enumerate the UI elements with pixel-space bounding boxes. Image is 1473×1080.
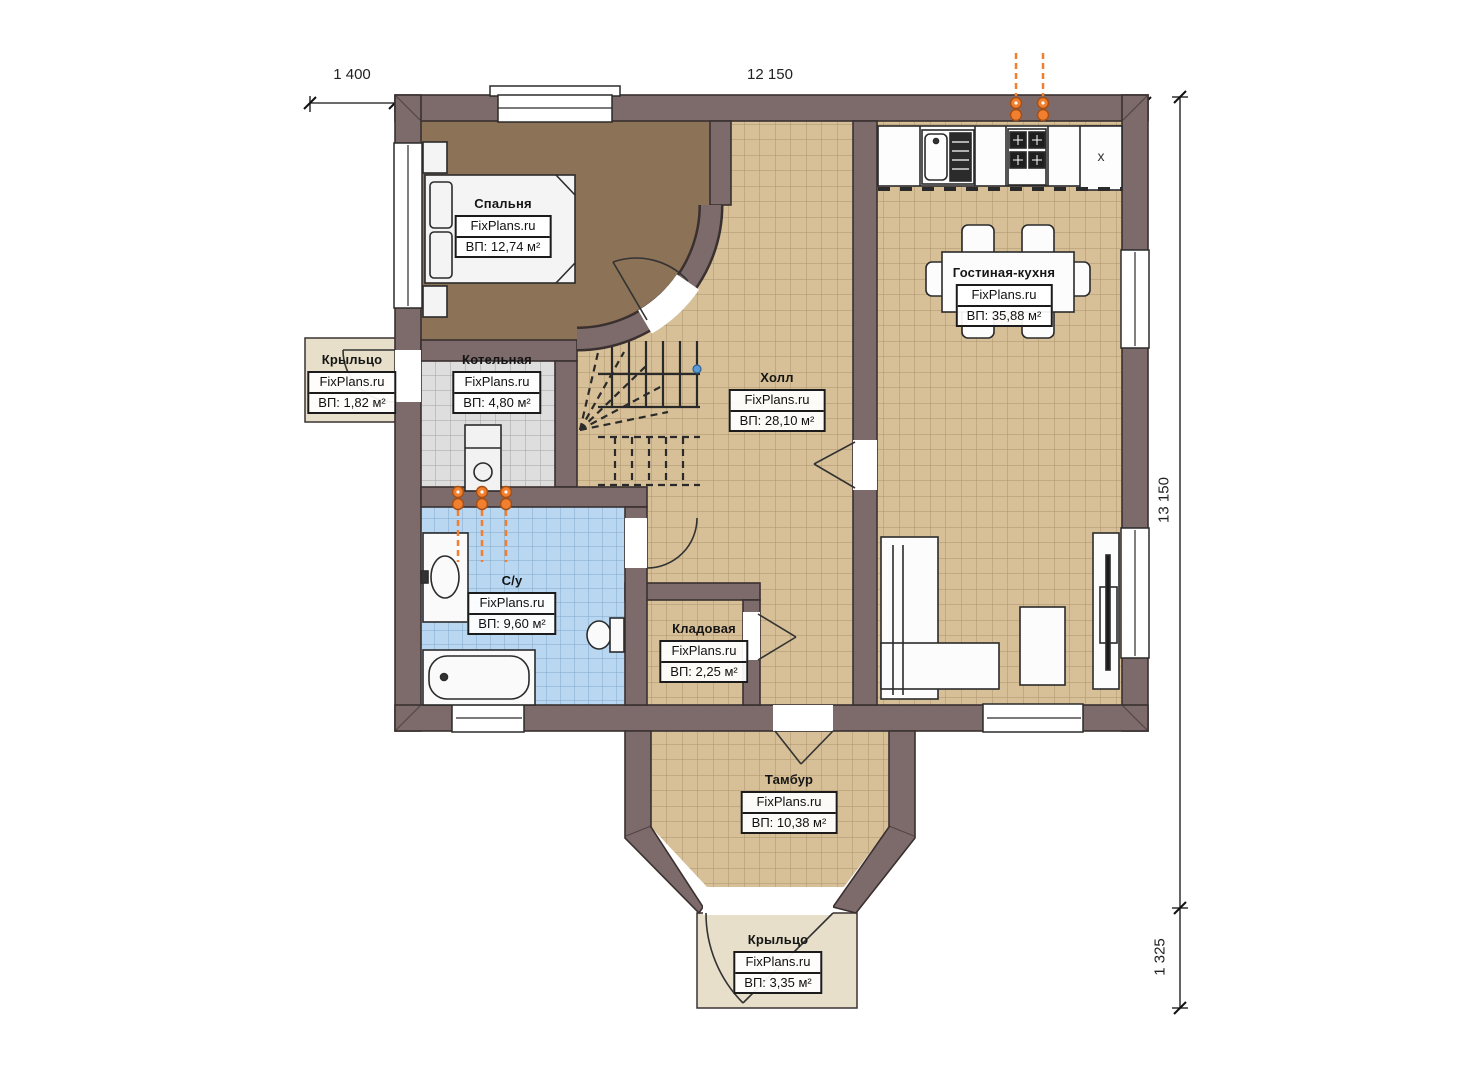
watermark-box: FixPlans.ru ВП: 10,38 м² — [741, 791, 838, 834]
riser-icon — [501, 499, 512, 510]
room-label-hall: Холл FixPlans.ru ВП: 28,10 м² — [729, 370, 826, 432]
room-area: ВП: 35,88 м² — [958, 307, 1051, 325]
room-name: Кладовая — [659, 621, 748, 637]
room-label-storage: Кладовая FixPlans.ru ВП: 2,25 м² — [659, 621, 748, 683]
room-name: Спальня — [455, 196, 552, 212]
living-door-gap — [853, 440, 877, 490]
watermark-text: FixPlans.ru — [735, 953, 820, 973]
dimension-top-width: 12 150 — [747, 66, 793, 83]
left-porch-door-gap — [395, 350, 421, 402]
room-label-left-porch: Крыльцо FixPlans.ru ВП: 1,82 м² — [307, 352, 396, 414]
wall-hall-living — [853, 121, 877, 705]
entry-door-gap — [703, 905, 833, 915]
room-area: ВП: 2,25 м² — [661, 663, 746, 681]
vestibule-door-gap — [773, 705, 833, 731]
riser-icon — [477, 499, 488, 510]
room-name: С/у — [467, 573, 556, 589]
room-label-bathroom: С/у FixPlans.ru ВП: 9,60 м² — [467, 573, 556, 635]
stove — [1008, 129, 1046, 185]
sink-basin — [431, 556, 459, 598]
room-name: Холл — [729, 370, 826, 386]
room-area: ВП: 28,10 м² — [731, 412, 824, 430]
bathtub-drain — [441, 674, 448, 681]
faucet — [421, 571, 428, 583]
watermark-box: FixPlans.ru ВП: 1,82 м² — [307, 371, 396, 414]
room-name: Крыльцо — [307, 352, 396, 368]
pillow — [430, 182, 452, 228]
dimension-right-height: 13 150 — [1156, 477, 1173, 523]
floor-plan-page: x — [0, 0, 1473, 1080]
watermark-text: FixPlans.ru — [454, 373, 539, 393]
watermark-text: FixPlans.ru — [457, 217, 550, 237]
floor-plan-canvas: x — [0, 0, 1473, 1080]
room-label-bedroom: Спальня FixPlans.ru ВП: 12,74 м² — [455, 196, 552, 258]
watermark-box: FixPlans.ru ВП: 4,80 м² — [452, 371, 541, 414]
room-name: Котельная — [452, 352, 541, 368]
boiler-unit — [465, 425, 501, 491]
kitchen-sink — [922, 130, 974, 184]
bathroom-door-gap — [625, 518, 647, 568]
room-label-living-kitchen: Гостиная-кухня FixPlans.ru ВП: 35,88 м² — [953, 265, 1055, 327]
watermark-box: FixPlans.ru ВП: 3,35 м² — [733, 951, 822, 994]
riser-icon — [1011, 110, 1022, 121]
kitchen-cabinet-mark: x — [1098, 148, 1105, 164]
watermark-text: FixPlans.ru — [731, 391, 824, 411]
pillow — [430, 232, 452, 278]
sofa-seat — [881, 643, 999, 689]
watermark-text: FixPlans.ru — [661, 642, 746, 662]
watermark-box: FixPlans.ru ВП: 9,60 м² — [467, 592, 556, 635]
toilet-tank — [610, 618, 624, 652]
watermark-text: FixPlans.ru — [469, 594, 554, 614]
tv-screen — [1106, 555, 1110, 670]
room-label-bottom-porch: Крыльцо FixPlans.ru ВП: 3,35 м² — [733, 932, 822, 994]
stair-node-dot — [693, 365, 701, 373]
room-name: Крыльцо — [733, 932, 822, 948]
watermark-box: FixPlans.ru ВП: 2,25 м² — [659, 640, 748, 683]
watermark-text: FixPlans.ru — [309, 373, 394, 393]
room-name: Гостиная-кухня — [953, 265, 1055, 281]
dimension-right-porch: 1 325 — [1152, 938, 1169, 976]
room-name: Тамбур — [741, 772, 838, 788]
toilet-bowl — [587, 621, 611, 649]
kitchen-counter: x — [878, 126, 1122, 190]
room-area: ВП: 12,74 м² — [457, 238, 550, 256]
nightstand — [423, 286, 447, 317]
dimension-top-left: 1 400 — [333, 66, 371, 83]
watermark-box: FixPlans.ru ВП: 35,88 м² — [956, 284, 1053, 327]
watermark-text: FixPlans.ru — [743, 793, 836, 813]
coffee-table — [1020, 607, 1065, 685]
room-label-vestibule: Тамбур FixPlans.ru ВП: 10,38 м² — [741, 772, 838, 834]
wall-boiler-right — [555, 361, 577, 487]
riser-icon — [453, 499, 464, 510]
room-area: ВП: 1,82 м² — [309, 394, 394, 412]
room-area: ВП: 10,38 м² — [743, 814, 836, 832]
watermark-box: FixPlans.ru ВП: 12,74 м² — [455, 215, 552, 258]
room-label-boiler: Котельная FixPlans.ru ВП: 4,80 м² — [452, 352, 541, 414]
watermark-text: FixPlans.ru — [958, 286, 1051, 306]
watermark-box: FixPlans.ru ВП: 28,10 м² — [729, 389, 826, 432]
room-area: ВП: 4,80 м² — [454, 394, 539, 412]
room-area: ВП: 3,35 м² — [735, 974, 820, 992]
riser-icon — [1038, 110, 1049, 121]
room-area: ВП: 9,60 м² — [469, 615, 554, 633]
nightstand — [423, 142, 447, 173]
wall-bedroom-right — [710, 121, 731, 205]
